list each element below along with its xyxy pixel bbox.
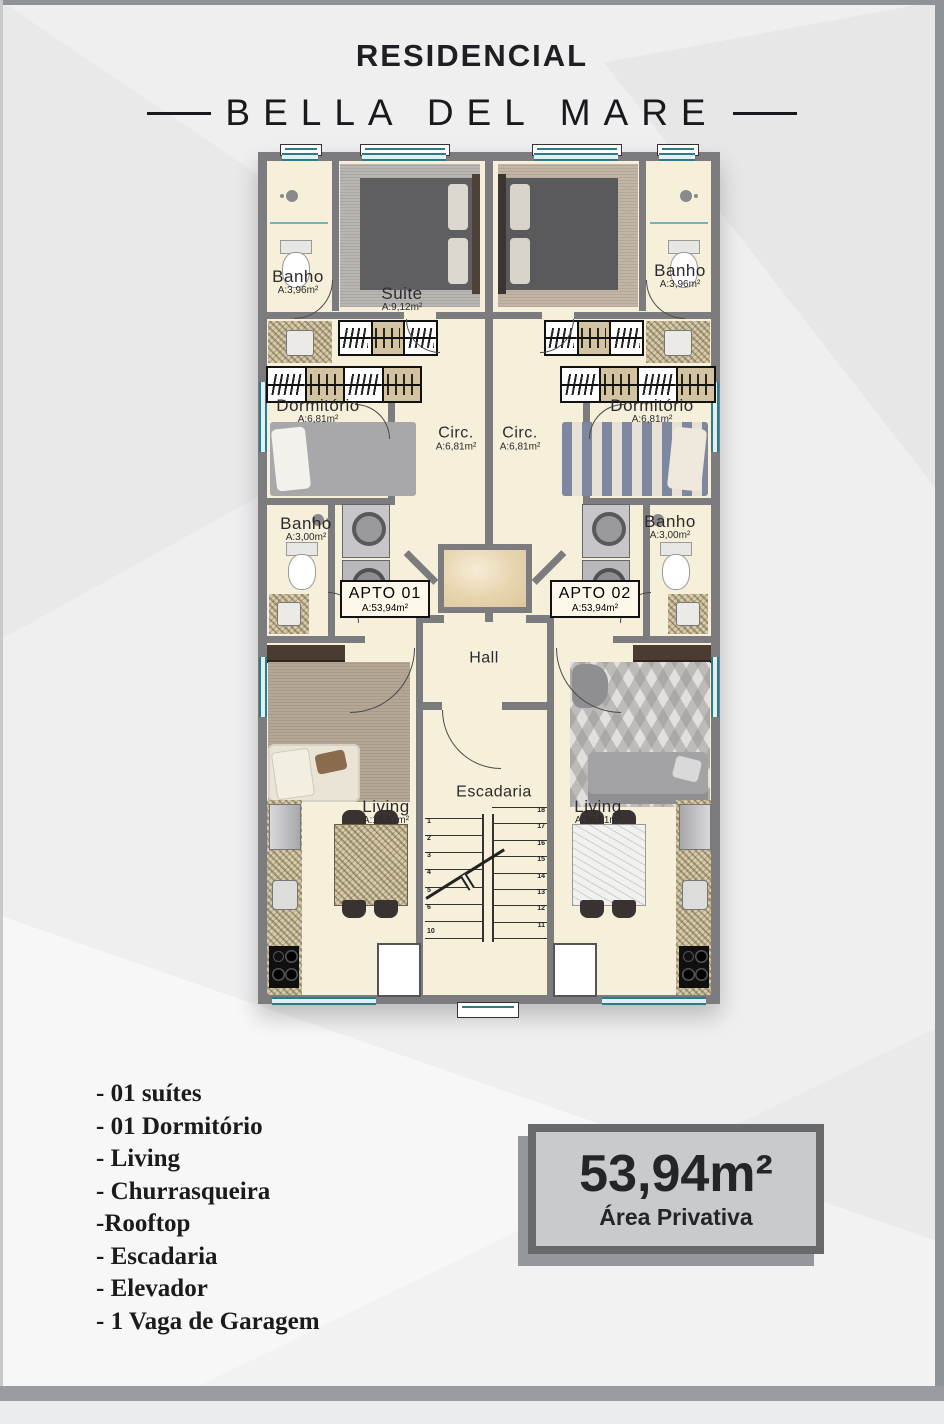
bed-pillow [448, 238, 468, 284]
room-label-dormitorio-l: Dormitório A:6,81m² [276, 397, 359, 425]
room-label-banho-tl: Banho A:3,96m² [272, 268, 324, 296]
room-label-living-r: Living A:16,51m² [574, 798, 621, 826]
toilet [662, 554, 690, 590]
step-number: 15 [537, 856, 545, 863]
stair-step: 2 [425, 835, 482, 852]
dining-table-right [572, 824, 646, 906]
residencial-title: RESIDENCIAL [0, 38, 944, 74]
step-number: 4 [427, 869, 431, 876]
room-label-banho-ml: Banho A:3,00m² [280, 515, 332, 543]
stove-burner-icon [273, 951, 284, 962]
feature-item: - 01 suítes [96, 1078, 320, 1111]
stair-step: 14 [492, 873, 547, 889]
wall [547, 615, 554, 995]
shelf-line [650, 222, 708, 224]
sink-basin [676, 602, 700, 626]
chair [342, 900, 366, 918]
room-label-circ-r: Circ. A:6,81m² [500, 425, 541, 452]
washer-drum-icon [352, 512, 386, 546]
window [272, 997, 376, 1005]
stair-step: 6 [425, 904, 482, 921]
title-right-rule [733, 112, 797, 115]
flyer-page: RESIDENCIAL BELLA DEL MARE [0, 0, 944, 1424]
toilet [288, 554, 316, 590]
feature-item: - Living [96, 1143, 320, 1176]
stair-step: 1 [425, 818, 482, 835]
room-area: A:6,81m² [436, 442, 477, 453]
bed-headboard [472, 174, 480, 294]
room-name: Living [362, 798, 409, 816]
room-area: A:6,81m² [276, 415, 359, 426]
apto1-area: A:53,94m² [342, 603, 428, 614]
room-label-living-l: Living A:16,51m² [362, 798, 409, 826]
balcony-window-tab [457, 1002, 519, 1018]
room-name: Dormitório [276, 397, 359, 415]
window [711, 657, 719, 717]
closet-cell [382, 368, 421, 401]
window [362, 153, 446, 161]
room-name: Suite [381, 285, 422, 303]
stair-step: 13 [492, 889, 547, 905]
room-area: A:6,81m² [610, 415, 693, 426]
area-value: 53,94m² [579, 1148, 773, 1200]
frame-left [0, 0, 3, 1424]
room-area: A:16,51m² [362, 816, 409, 827]
washer-drum-icon [592, 512, 626, 546]
room-area: A:3,00m² [280, 533, 332, 544]
room-label-suite: Suite A:9,12m² [381, 285, 422, 313]
bed-pillow [448, 184, 468, 230]
apto2-label-box: APTO 02 A:53,94m² [550, 580, 640, 618]
window [534, 153, 618, 161]
frame-right [935, 0, 944, 1424]
churrasqueira-counter [267, 645, 345, 663]
frame-top [0, 0, 944, 5]
room-name: Circ. [436, 425, 477, 442]
feature-item: - 01 Dormitório [96, 1111, 320, 1144]
stair-step: 17 [492, 823, 547, 839]
closet-cell [340, 322, 371, 354]
apto1-name: APTO 01 [342, 585, 428, 603]
wall [267, 636, 365, 643]
step-number: 18 [537, 807, 545, 814]
wall [639, 161, 646, 311]
frame-bottom [0, 1386, 944, 1401]
wall [574, 312, 711, 319]
fridge [269, 804, 301, 850]
bed-pillow [667, 426, 707, 491]
wall [416, 615, 423, 995]
step-number: 17 [537, 823, 545, 830]
room-name: Circ. [500, 425, 541, 442]
apto2-name: APTO 02 [552, 585, 638, 603]
room-area: A:3,96m² [654, 280, 706, 291]
room-label-banho-tr: Banho A:3,96m² [654, 262, 706, 290]
fridge [679, 804, 711, 850]
wall [332, 161, 339, 311]
feature-item: - 1 Vaga de Garagem [96, 1306, 320, 1339]
room-label-hall: Hall [469, 651, 499, 668]
elevator-shaft [438, 544, 532, 613]
room-area: A:16,51m² [574, 816, 621, 827]
building-name-row: BELLA DEL MARE [0, 92, 944, 134]
area-label: Área Privativa [599, 1204, 752, 1231]
closet-cell [371, 322, 404, 354]
stair-step: 18 [492, 807, 547, 823]
room-name: Banho [280, 515, 332, 533]
stair-step: 16 [492, 840, 547, 856]
chair [612, 900, 636, 918]
feature-item: -Rooftop [96, 1208, 320, 1241]
window [259, 657, 267, 717]
floor-plan: 1 2 3 4 5 6 10 18 17 16 15 14 13 12 11 [258, 152, 720, 1004]
bed-pillow [271, 426, 311, 491]
room-area: A:6,81m² [500, 442, 541, 453]
step-number: 12 [537, 905, 545, 912]
closet-cell [609, 322, 642, 354]
room-name: Escadaria [456, 785, 532, 802]
kitchen-sink [682, 880, 708, 910]
building-name: BELLA DEL MARE [225, 92, 718, 134]
room-name: Banho [644, 513, 696, 531]
room-name: Hall [469, 651, 499, 668]
room-name: Living [574, 798, 621, 816]
chair [374, 900, 398, 918]
bed-pillow [510, 238, 530, 284]
stair-step: 5 [425, 887, 482, 904]
step-number: 1 [427, 818, 431, 825]
title-left-rule [147, 112, 211, 115]
apto1-label-box: APTO 01 A:53,94m² [340, 580, 430, 618]
stair-step: 10 [425, 921, 482, 938]
private-area-badge: 53,94m² Área Privativa [528, 1124, 824, 1254]
room-area: A:3,00m² [644, 531, 696, 542]
room-label-banho-mr: Banho A:3,00m² [644, 513, 696, 541]
room-label-escadaria: Escadaria [456, 785, 532, 802]
room-label-dormitorio-r: Dormitório A:6,81m² [610, 397, 693, 425]
step-number: 2 [427, 835, 431, 842]
step-number: 14 [537, 873, 545, 880]
sink-basin [286, 330, 314, 356]
window [659, 153, 695, 161]
feature-item: - Elevador [96, 1273, 320, 1306]
stair-side-niche [553, 943, 597, 997]
room-area: A:3,96m² [272, 286, 324, 297]
stove-burner-icon [683, 951, 694, 962]
step-number: 16 [537, 840, 545, 847]
churrasqueira-counter [633, 645, 711, 663]
wall [436, 312, 542, 319]
features-list: - 01 suítes - 01 Dormitório - Living - C… [96, 1078, 320, 1338]
bed-pillow [510, 184, 530, 230]
stair-step: 12 [492, 905, 547, 921]
step-number: 10 [427, 928, 435, 935]
room-label-circ-l: Circ. A:6,81m² [436, 425, 477, 452]
kitchen-sink [272, 880, 298, 910]
step-number: 3 [427, 852, 431, 859]
room-name: Banho [654, 262, 706, 280]
stair-side-niche [377, 943, 421, 997]
room-area: A:9,12m² [381, 303, 422, 314]
feature-item: - Escadaria [96, 1241, 320, 1274]
window [602, 997, 706, 1005]
step-number: 13 [537, 889, 545, 896]
wall [613, 636, 711, 643]
stair-step: 15 [492, 856, 547, 872]
stair-flight-right: 18 17 16 15 14 13 12 11 [492, 807, 547, 939]
sink-basin [277, 602, 301, 626]
room-name: Banho [272, 268, 324, 286]
sink-basin [664, 330, 692, 356]
shower-head-icon [680, 190, 692, 202]
sofa-cushion [271, 748, 315, 801]
wall [502, 702, 554, 710]
step-number: 11 [538, 922, 545, 929]
feature-item: - Churrasqueira [96, 1176, 320, 1209]
closet-cell [562, 368, 599, 401]
step-number: 6 [427, 904, 431, 911]
apto2-area: A:53,94m² [552, 603, 638, 614]
frame-bottom-margin [0, 1401, 944, 1424]
stair-step: 11 [492, 922, 547, 938]
shelf-line [270, 222, 328, 224]
window [282, 153, 318, 161]
shower-head-icon [286, 190, 298, 202]
wall [416, 702, 442, 710]
chair [580, 900, 604, 918]
closet-cell [577, 322, 610, 354]
bed-headboard [498, 174, 506, 294]
dining-table-left [334, 824, 408, 906]
room-name: Dormitório [610, 397, 693, 415]
